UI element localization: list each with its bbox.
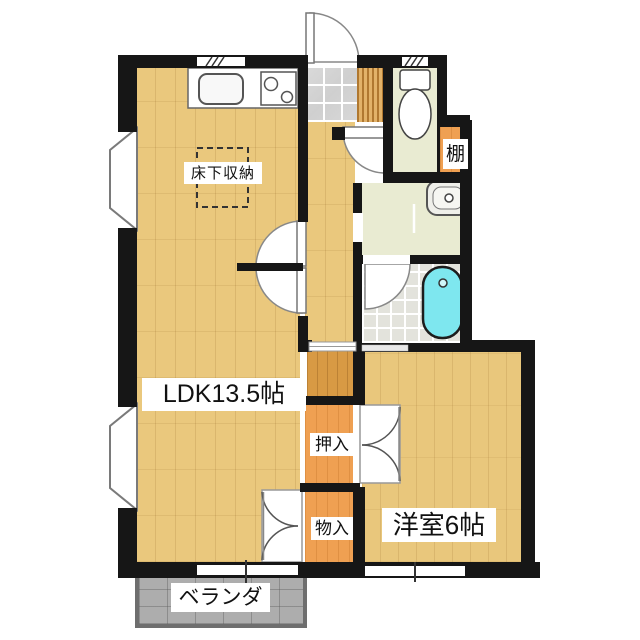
label-underfloor-storage: 床下収納 xyxy=(184,162,262,184)
toilet-bowl xyxy=(399,89,431,139)
ldk-door-swing-lower xyxy=(256,267,302,313)
floorplan-canvas: 床下収納 LDK13.5帖 押入 物入 洋室6帖 棚 ベランダ xyxy=(0,0,640,640)
wall-bottom xyxy=(118,562,540,578)
stove-burner-1 xyxy=(265,78,278,91)
kitchen-sink xyxy=(199,74,243,104)
wall-westernroom-top-west xyxy=(355,343,465,352)
wall-toilet-door-stub xyxy=(332,127,345,140)
bathtub xyxy=(423,267,462,338)
wall-right xyxy=(521,340,535,570)
wall-westernroom-top-east xyxy=(462,340,535,352)
label-veranda: ベランダ xyxy=(171,583,270,612)
wall-junction xyxy=(298,340,312,352)
wall-left-middle xyxy=(118,228,137,407)
wall-ldk-spur xyxy=(237,263,303,271)
wall-toilet-right-upper xyxy=(437,55,447,122)
wall-ldk-hall-upper xyxy=(298,55,308,222)
wall-toilet-left xyxy=(383,68,393,183)
label-ldk: LDK13.5帖 xyxy=(142,378,306,411)
fixtures-and-doors-layer xyxy=(0,0,640,640)
label-oshiire: 押入 xyxy=(310,433,354,456)
bay-window-top xyxy=(110,128,137,230)
wall-oshiire-top xyxy=(300,396,360,405)
wall-top-main xyxy=(118,55,307,68)
wall-shelf-left xyxy=(437,127,440,172)
ldk-door-swing-upper xyxy=(256,221,302,267)
ldk-door-leaf-lower xyxy=(297,268,306,313)
wall-toilet-bottom xyxy=(383,172,470,183)
toilet-door-leaf xyxy=(343,127,385,138)
wall-monoire-right xyxy=(353,487,365,567)
entrance-door-swing xyxy=(310,13,359,62)
label-monoire: 物入 xyxy=(311,517,353,540)
wall-oshiire-bottom xyxy=(300,483,360,492)
label-shelf: 棚 xyxy=(443,139,468,169)
oshiire-doors-area xyxy=(360,405,400,483)
stove-burner-2 xyxy=(282,92,293,103)
ldk-door-leaf-upper xyxy=(297,221,306,266)
wall-washroom-bath xyxy=(353,255,463,264)
wall-left-upper xyxy=(118,55,137,132)
bathtub-drain xyxy=(439,279,447,287)
bay-window-bottom xyxy=(110,404,137,510)
toilet-tank xyxy=(400,70,430,90)
label-western-room: 洋室6帖 xyxy=(382,508,496,542)
washbasin-drain xyxy=(445,194,453,202)
bath-door-swing xyxy=(365,264,410,309)
wall-top-right xyxy=(357,55,447,68)
